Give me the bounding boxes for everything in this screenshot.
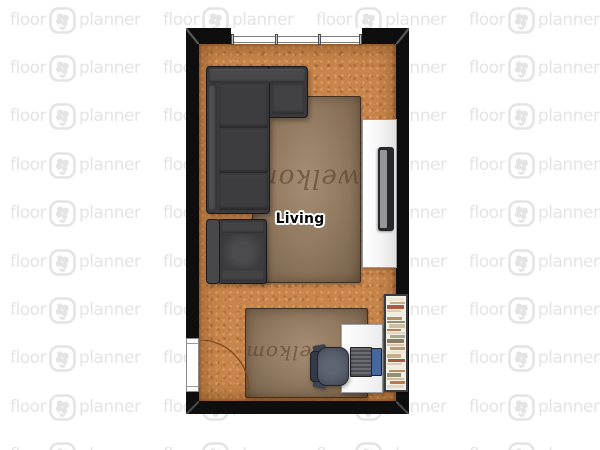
book-stripe: [387, 329, 401, 331]
sofa-armrest: [209, 85, 217, 210]
book-stripe: [387, 344, 404, 346]
laptop-screen: [371, 348, 382, 376]
window-mullion: [275, 34, 278, 45]
book-stripe: [387, 378, 404, 380]
tv-screen: [380, 150, 387, 228]
laptop-keyboard: [350, 347, 372, 377]
book-stripe: [390, 381, 405, 384]
tv[interactable]: [378, 147, 394, 231]
window-mullion: [231, 34, 234, 45]
book-stripe: [387, 351, 404, 353]
office-chair-seat: [317, 347, 349, 386]
book-stripe: [388, 359, 405, 362]
bookshelf[interactable]: [384, 294, 408, 392]
armchair-armrest: [221, 270, 264, 281]
wall-bottom[interactable]: [186, 401, 409, 414]
window-frame: [231, 36, 362, 43]
sofa-seat-cushion: [219, 85, 268, 128]
book-stripe: [388, 313, 405, 316]
sofa-seat-cushion: [219, 130, 268, 173]
armchair-backrest: [206, 219, 220, 284]
window[interactable]: [231, 28, 362, 44]
book-stripe: [387, 298, 404, 301]
book-stripe: [387, 321, 405, 323]
book-stripe: [387, 385, 404, 388]
door[interactable]: [186, 338, 199, 392]
armchair-armrest: [221, 222, 264, 233]
book-stripe: [390, 347, 405, 350]
book-stripe: [387, 310, 401, 312]
office-chair[interactable]: [309, 345, 350, 388]
door-swing-arc: [199, 340, 251, 392]
book-stripe: [387, 332, 404, 334]
laptop[interactable]: [350, 346, 383, 378]
book-stripe: [390, 302, 405, 304]
book-stripe: [387, 373, 401, 377]
floor-plan: welkom welkom: [0, 0, 600, 450]
sofa-chaise-cushion: [272, 85, 304, 114]
floorplanner-canvas: floorplannerfloorplannerfloorplannerfloo…: [0, 0, 600, 450]
book-stripe: [387, 363, 402, 365]
book-stripe: [387, 366, 405, 369]
sofa-seat-cushion: [219, 175, 268, 210]
room-label: Living: [268, 211, 332, 227]
armchair-seat-cushion: [221, 234, 264, 269]
book-stripe: [387, 317, 402, 320]
corner-sofa[interactable]: [206, 66, 308, 214]
book-stripe: [387, 339, 404, 343]
window-mullion: [359, 34, 362, 45]
book-stripe: [389, 324, 405, 328]
book-stripe: [387, 354, 401, 358]
sofa-back-cushion: [209, 69, 305, 83]
book-stripe: [390, 335, 405, 338]
book-stripe: [387, 305, 404, 309]
book-stripe: [389, 370, 405, 372]
armchair[interactable]: [206, 219, 267, 284]
window-mullion: [318, 34, 321, 45]
bookshelf-books: [387, 297, 405, 389]
